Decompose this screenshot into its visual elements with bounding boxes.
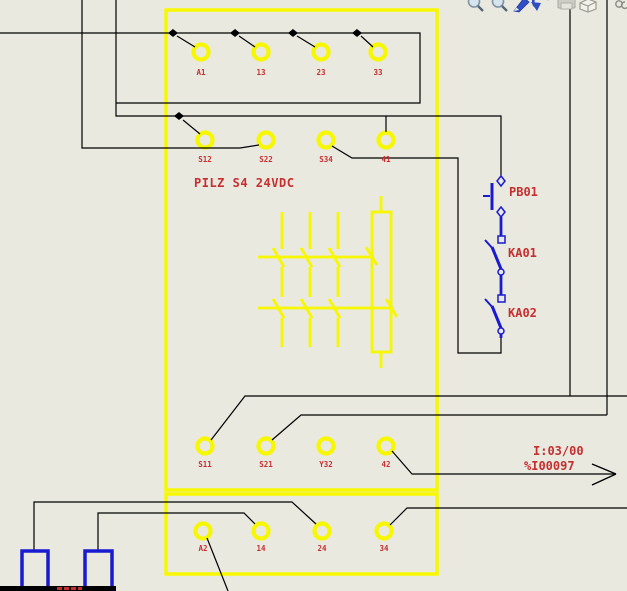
terminal-ring[interactable] bbox=[254, 524, 269, 539]
terminal-ring[interactable] bbox=[319, 133, 334, 148]
pushbutton-pb01-symbol[interactable] bbox=[483, 176, 505, 236]
contact-column[interactable] bbox=[273, 212, 284, 347]
wire-34[interactable] bbox=[390, 508, 627, 525]
terminal-ring[interactable] bbox=[319, 439, 334, 454]
zoom-window-icon[interactable] bbox=[493, 0, 508, 11]
terminal-label: S34 bbox=[319, 155, 333, 164]
io-tag: %I00097 bbox=[524, 459, 575, 473]
wire-24[interactable] bbox=[34, 502, 316, 551]
terminal-label: 41 bbox=[381, 155, 391, 164]
wire-s11[interactable] bbox=[211, 396, 627, 440]
terminal-ring[interactable] bbox=[254, 45, 269, 60]
terminal-diamond bbox=[497, 176, 505, 186]
terminal-ring[interactable] bbox=[377, 524, 392, 539]
clipped-bottom-strip bbox=[0, 586, 116, 591]
contact-blade bbox=[492, 247, 501, 269]
terminal-label: S21 bbox=[259, 460, 273, 469]
terminal-label: 34 bbox=[379, 544, 389, 553]
terminal-label: 42 bbox=[381, 460, 390, 469]
terminal-label: A1 bbox=[196, 68, 206, 77]
device-label-ka01: KA01 bbox=[508, 246, 537, 260]
terminal-ring[interactable] bbox=[379, 133, 394, 148]
terminal-label: Y32 bbox=[319, 460, 333, 469]
terminal-label: 24 bbox=[317, 544, 327, 553]
terminal-label: 13 bbox=[256, 68, 266, 77]
terminal-ring[interactable] bbox=[198, 133, 213, 148]
terminal-label: S22 bbox=[259, 155, 273, 164]
terminal-circle bbox=[498, 269, 504, 275]
actuator-body[interactable] bbox=[372, 212, 391, 352]
terminal-diamond bbox=[497, 207, 505, 217]
relay-contact-symbols[interactable] bbox=[258, 196, 397, 368]
terminal-label: A2 bbox=[198, 544, 207, 553]
terminal-square bbox=[498, 236, 505, 243]
device-label-ka02: KA02 bbox=[508, 306, 537, 320]
relay-lower-outline[interactable] bbox=[166, 494, 437, 574]
zoom-in-icon[interactable] bbox=[469, 0, 484, 11]
wire-second-bus[interactable] bbox=[116, 0, 501, 176]
wire-top-bus[interactable] bbox=[0, 33, 420, 103]
wire-14[interactable] bbox=[98, 513, 255, 551]
wire-s22[interactable] bbox=[82, 0, 259, 148]
wire-a2[interactable] bbox=[207, 538, 228, 591]
io-address: I:03/00 bbox=[533, 444, 584, 458]
relay-terminals[interactable] bbox=[194, 45, 394, 539]
terminal-square bbox=[498, 295, 505, 302]
terminal-label: S11 bbox=[198, 460, 212, 469]
contact-blade bbox=[492, 306, 501, 328]
pen-icon[interactable] bbox=[514, 0, 529, 12]
toolbar bbox=[469, 0, 627, 12]
terminal-label: S12 bbox=[198, 155, 212, 164]
terminal-label: 23 bbox=[316, 68, 326, 77]
wire-s21[interactable] bbox=[272, 415, 607, 440]
undo-icon[interactable] bbox=[531, 0, 549, 11]
terminal-ring[interactable] bbox=[379, 439, 394, 454]
relay-title: PILZ S4 24VDC bbox=[194, 176, 294, 190]
device-rectangle-2[interactable] bbox=[85, 551, 112, 588]
terminal-ring[interactable] bbox=[194, 45, 209, 60]
contact-column[interactable] bbox=[329, 212, 340, 347]
terminal-ring[interactable] bbox=[196, 524, 211, 539]
contact-ka01-symbol[interactable] bbox=[485, 236, 505, 295]
terminal-ring[interactable] bbox=[314, 45, 329, 60]
contact-column[interactable] bbox=[301, 212, 312, 347]
terminal-ring[interactable] bbox=[198, 439, 213, 454]
contact-ka02-symbol[interactable] bbox=[485, 295, 505, 338]
terminal-circle bbox=[498, 328, 504, 334]
relay-body[interactable] bbox=[166, 10, 437, 574]
terminal-ring[interactable] bbox=[259, 133, 274, 148]
terminal-label: 14 bbox=[256, 544, 266, 553]
drawing-canvas[interactable]: A1 13 23 33 S12 S22 S34 41 S11 S21 Y32 4… bbox=[0, 0, 627, 591]
cube-icon[interactable] bbox=[580, 0, 596, 12]
wire-s34-return[interactable] bbox=[332, 146, 501, 353]
cad-drawing-area: A1 13 23 33 S12 S22 S34 41 S11 S21 Y32 4… bbox=[0, 0, 627, 591]
terminal-ring[interactable] bbox=[315, 524, 330, 539]
wire-network[interactable] bbox=[0, 0, 627, 591]
terminal-ring[interactable] bbox=[259, 439, 274, 454]
terminal-label: 33 bbox=[373, 68, 383, 77]
partial-icon[interactable] bbox=[616, 1, 627, 9]
device-rectangle-1[interactable] bbox=[22, 551, 48, 588]
print-icon[interactable] bbox=[558, 0, 575, 9]
device-label-pb01: PB01 bbox=[509, 185, 538, 199]
